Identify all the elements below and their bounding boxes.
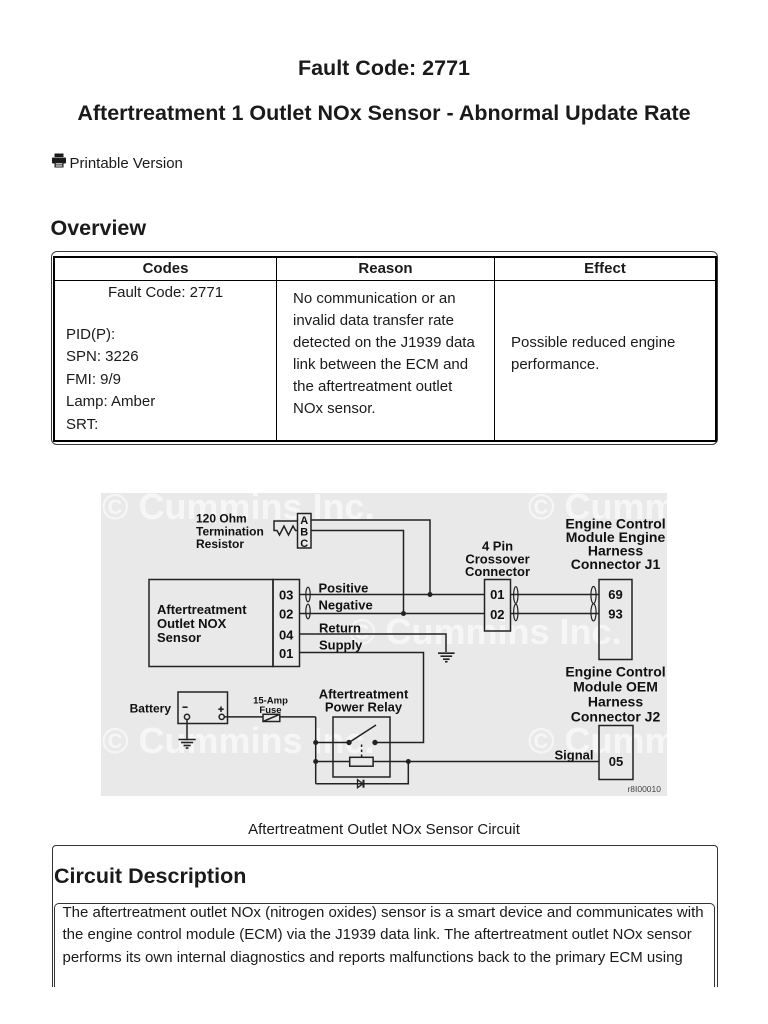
svg-text:Harness: Harness [588, 694, 643, 710]
svg-text:Module OEM: Module OEM [573, 679, 658, 695]
svg-text:Connector J2: Connector J2 [571, 709, 661, 725]
svg-text:Aftertreatment: Aftertreatment [157, 602, 247, 617]
svg-text:Return: Return [319, 621, 361, 636]
svg-text:Engine Control: Engine Control [565, 664, 665, 680]
svg-text:Supply: Supply [319, 638, 363, 653]
svg-text:Connector: Connector [465, 564, 530, 579]
svg-text:r8I00010: r8I00010 [627, 784, 661, 794]
svg-text:02: 02 [279, 607, 293, 622]
svg-text:69: 69 [608, 587, 622, 602]
svg-text:02: 02 [490, 607, 504, 622]
svg-text:B: B [300, 526, 308, 538]
svg-text:Signal: Signal [554, 748, 593, 763]
svg-text:Outlet NOX: Outlet NOX [157, 616, 227, 631]
svg-text:Connector J1: Connector J1 [571, 556, 661, 572]
svg-text:Sensor: Sensor [157, 630, 201, 645]
svg-text:A: A [300, 515, 308, 527]
svg-text:01: 01 [490, 587, 504, 602]
svg-text:C: C [300, 538, 308, 550]
svg-text:05: 05 [609, 754, 623, 769]
svg-text:03: 03 [279, 588, 293, 603]
svg-text:04: 04 [279, 628, 294, 643]
svg-text:© Cummins Inc.: © Cummins Inc. [528, 720, 667, 761]
svg-text:Battery: Battery [130, 701, 172, 715]
svg-text:93: 93 [608, 607, 622, 622]
svg-text:Fuse: Fuse [259, 705, 281, 716]
svg-text:Power Relay: Power Relay [325, 699, 403, 714]
svg-text:Positive: Positive [319, 581, 369, 596]
svg-text:Negative: Negative [319, 598, 373, 613]
svg-text:01: 01 [279, 646, 293, 661]
svg-text:Resistor: Resistor [196, 537, 244, 551]
